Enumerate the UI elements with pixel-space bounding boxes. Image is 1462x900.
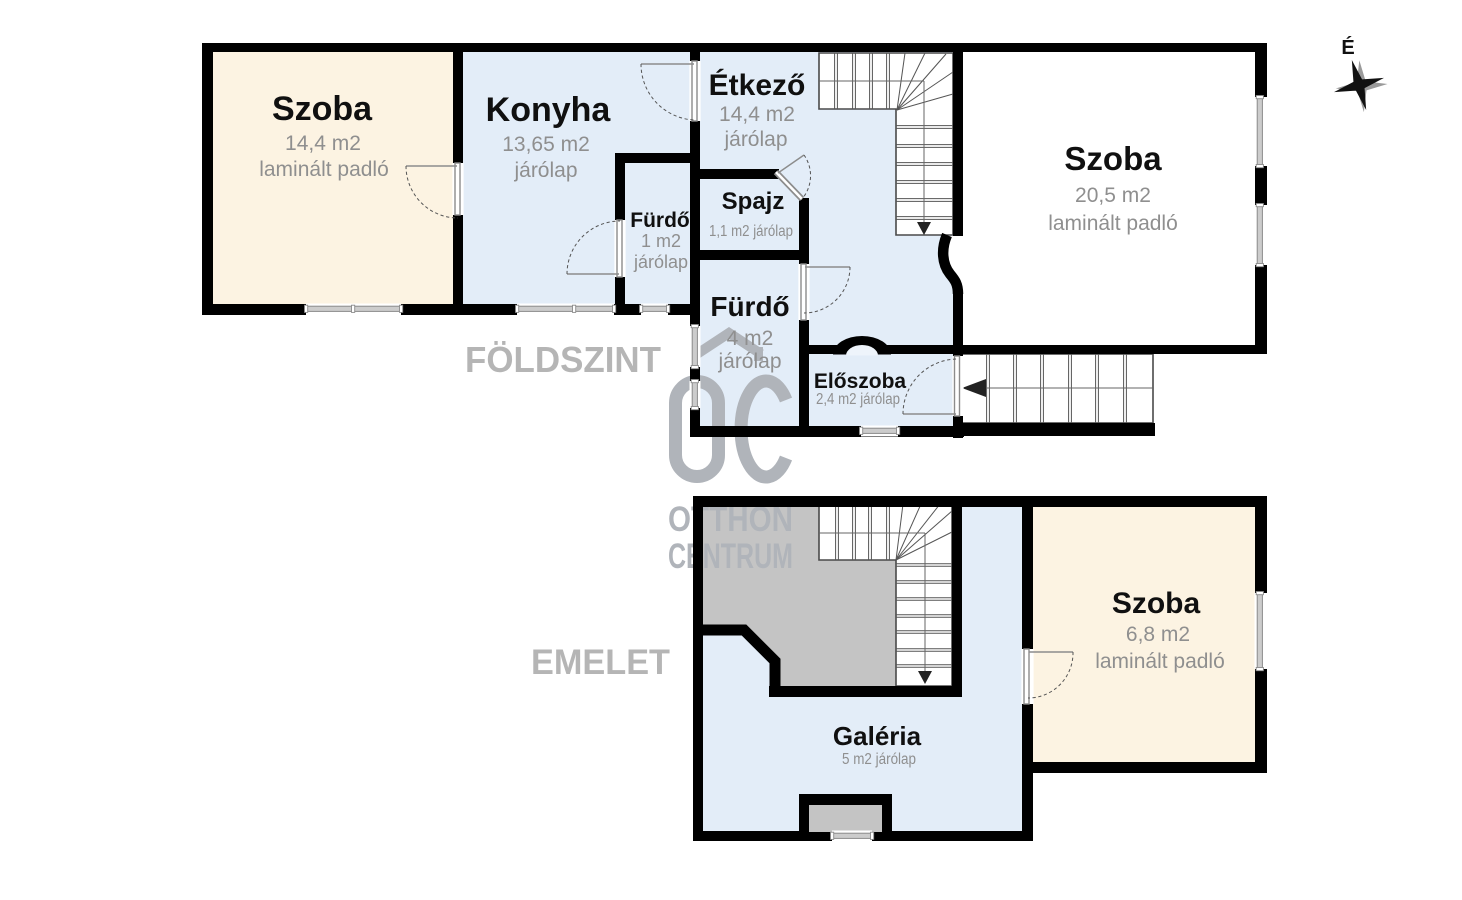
svg-text:13,65 m2: 13,65 m2: [502, 133, 590, 156]
svg-text:járólap: járólap: [723, 128, 787, 151]
svg-text:2,4 m2 járólap: 2,4 m2 járólap: [816, 391, 900, 408]
svg-text:Előszoba: Előszoba: [814, 370, 907, 393]
svg-text:Szoba: Szoba: [1112, 587, 1201, 620]
svg-text:Galéria: Galéria: [833, 721, 922, 751]
svg-text:laminált padló: laminált padló: [1095, 650, 1225, 673]
svg-text:14,4 m2: 14,4 m2: [719, 103, 795, 126]
svg-text:járólap: járólap: [513, 159, 577, 182]
svg-text:Spajz: Spajz: [722, 188, 785, 215]
svg-text:FÖLDSZINT: FÖLDSZINT: [465, 339, 661, 380]
svg-text:Étkező: Étkező: [709, 68, 806, 102]
svg-text:Fürdő: Fürdő: [710, 291, 789, 322]
svg-text:6,8 m2: 6,8 m2: [1126, 623, 1190, 646]
svg-text:járólap: járólap: [633, 252, 688, 272]
svg-text:5 m2 járólap: 5 m2 járólap: [842, 751, 916, 768]
svg-text:Fürdő: Fürdő: [630, 209, 689, 232]
svg-text:laminált padló: laminált padló: [1048, 212, 1178, 235]
svg-text:1 m2: 1 m2: [641, 231, 681, 251]
svg-text:Konyha: Konyha: [486, 91, 612, 129]
svg-text:Szoba: Szoba: [1064, 140, 1162, 177]
svg-text:járólap: járólap: [717, 350, 781, 373]
svg-text:Szoba: Szoba: [272, 90, 373, 128]
svg-text:CENTRUM: CENTRUM: [668, 537, 793, 576]
svg-text:1,1 m2 járólap: 1,1 m2 járólap: [709, 223, 793, 240]
svg-text:4 m2: 4 m2: [727, 327, 774, 350]
svg-text:laminált padló: laminált padló: [259, 158, 389, 181]
svg-text:É: É: [1341, 36, 1354, 59]
svg-text:EMELET: EMELET: [531, 643, 670, 682]
svg-text:20,5 m2: 20,5 m2: [1075, 184, 1151, 207]
svg-text:14,4 m2: 14,4 m2: [285, 132, 361, 155]
